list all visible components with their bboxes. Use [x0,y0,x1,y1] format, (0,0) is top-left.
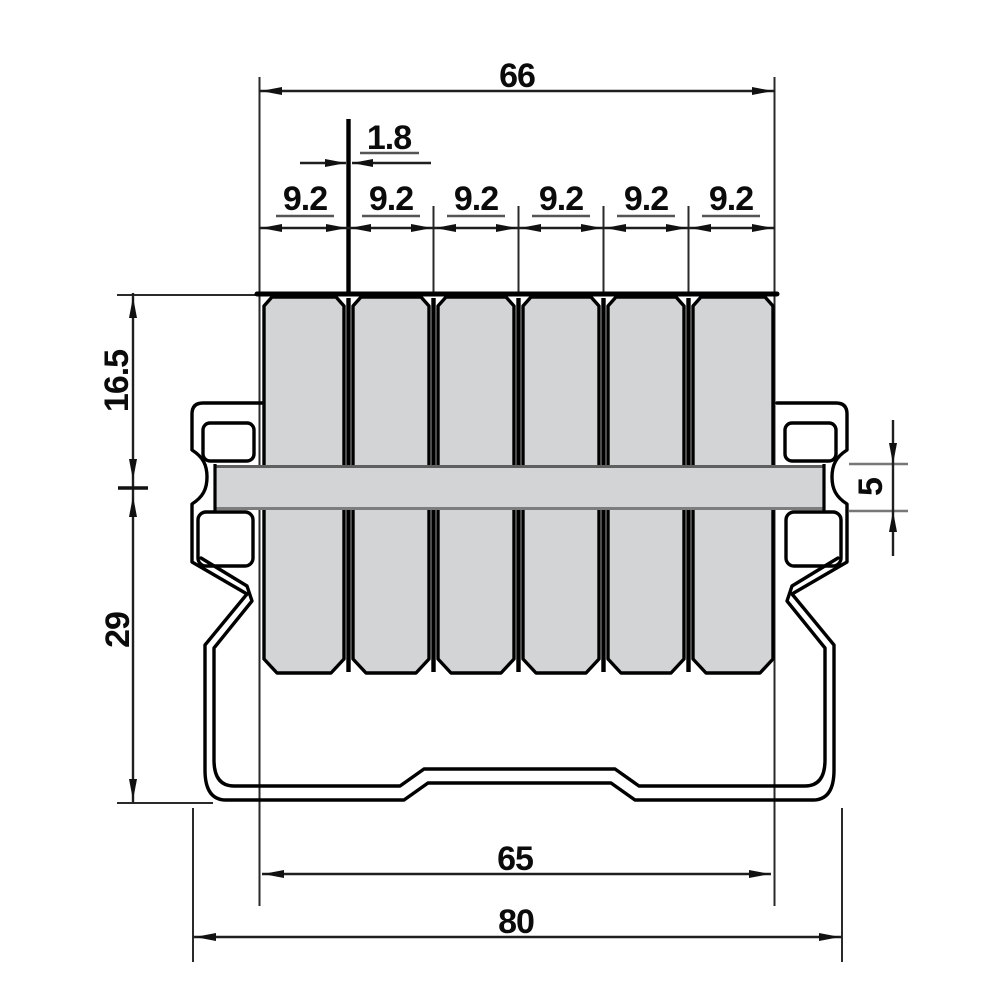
arrow-pitch-t3r [520,224,541,232]
arrow-bar-top [889,443,897,464]
right-clip-lower-window [786,512,841,566]
dim-label-bar-height: 5 [852,478,890,496]
dim-label-pitch-2: 9.2 [369,180,413,218]
dim-label-pitch-5: 9.2 [624,180,668,218]
arrow-pitch-end [752,224,773,232]
arrow-lower-top [129,496,137,517]
arrow-pitch-t4r [605,224,626,232]
arrow-65-right [749,870,770,878]
arrow-pitch-t4l [581,224,602,232]
arrow-bar-bottom [889,511,897,532]
rail-bar-body [215,466,824,509]
arrow-pitch-t2l [411,224,432,232]
dim-label-pitch-1: 9.2 [283,180,327,218]
arrow-66-right [752,87,773,95]
arrow-pitch-t1r [350,224,371,232]
dim-label-pitch-6: 9.2 [709,180,753,218]
dim-label-upper-height: 16.5 [98,350,136,412]
left-clip-upper-window [203,423,254,461]
arrow-pitch-t5r [690,224,711,232]
arrow-pitch-t3l [496,224,517,232]
arrow-pitch-t2r [435,224,456,232]
rail-bar [215,464,824,511]
dim-label-overall-top: 66 [499,57,535,95]
arrow-upper-top [129,297,137,318]
arrow-web-left [325,159,346,167]
dim-label-overall-bottom: 80 [498,903,534,941]
technical-drawing: 66 1.8 9.2 9.2 9.2 9.2 9.2 9.2 16.5 29 5… [0,0,1000,1000]
dim-label-pitch-3: 9.2 [454,180,498,218]
arrow-web-right [352,159,373,167]
dim-label-pitch-4: 9.2 [539,180,583,218]
arrow-pitch-start [261,224,282,232]
arrow-pitch-t5l [666,224,687,232]
engineering-drawing-canvas: 66 1.8 9.2 9.2 9.2 9.2 9.2 9.2 16.5 29 5… [0,0,1000,1000]
arrow-80-left [195,933,216,941]
dim-label-lower-height: 29 [99,612,137,648]
dim-label-web-thickness: 1.8 [367,119,411,157]
arrow-upper-bottom [129,459,137,480]
right-clip-upper-window [785,423,836,461]
arrow-lower-bottom [129,779,137,800]
arrow-66-left [261,87,282,95]
arrow-65-left [263,870,284,878]
arrow-pitch-t1l [326,224,347,232]
dim-label-inner-bottom: 65 [497,840,533,878]
arrow-80-right [819,933,840,941]
left-clip-lower-window [198,512,253,566]
